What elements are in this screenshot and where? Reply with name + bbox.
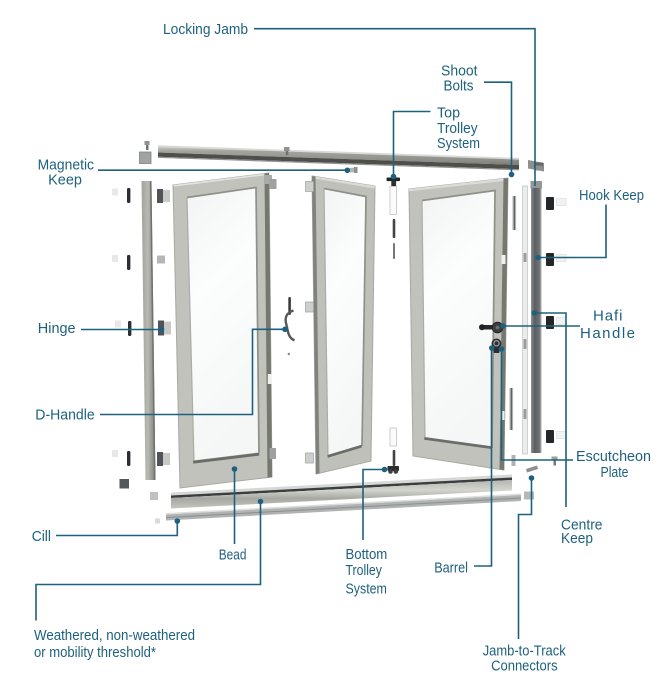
svg-text:Hinge: Hinge	[38, 320, 76, 337]
svg-text:D-Handle: D-Handle	[35, 407, 94, 424]
svg-text:Weathered, non-weathered: Weathered, non-weathered	[34, 627, 195, 644]
svg-text:Handle: Handle	[580, 325, 635, 342]
svg-text:Keep: Keep	[48, 171, 82, 188]
svg-text:Trolley: Trolley	[346, 562, 383, 579]
svg-text:Bottom: Bottom	[346, 546, 388, 563]
svg-text:Hafi: Hafi	[593, 308, 623, 325]
svg-text:Keep: Keep	[561, 530, 593, 547]
svg-text:Top: Top	[437, 104, 460, 121]
svg-text:Connectors: Connectors	[491, 657, 557, 674]
svg-text:Bead: Bead	[219, 547, 247, 564]
svg-text:System: System	[346, 581, 387, 598]
svg-text:Plate: Plate	[601, 464, 629, 481]
svg-text:or mobility threshold*: or mobility threshold*	[34, 644, 156, 661]
svg-text:Cill: Cill	[32, 528, 51, 545]
svg-text:Locking Jamb: Locking Jamb	[163, 21, 248, 38]
svg-text:Barrel: Barrel	[434, 559, 468, 576]
svg-text:System: System	[437, 135, 480, 152]
svg-text:Escutcheon: Escutcheon	[576, 448, 651, 465]
svg-text:Bolts: Bolts	[444, 78, 474, 95]
svg-text:Hook Keep: Hook Keep	[579, 187, 644, 204]
